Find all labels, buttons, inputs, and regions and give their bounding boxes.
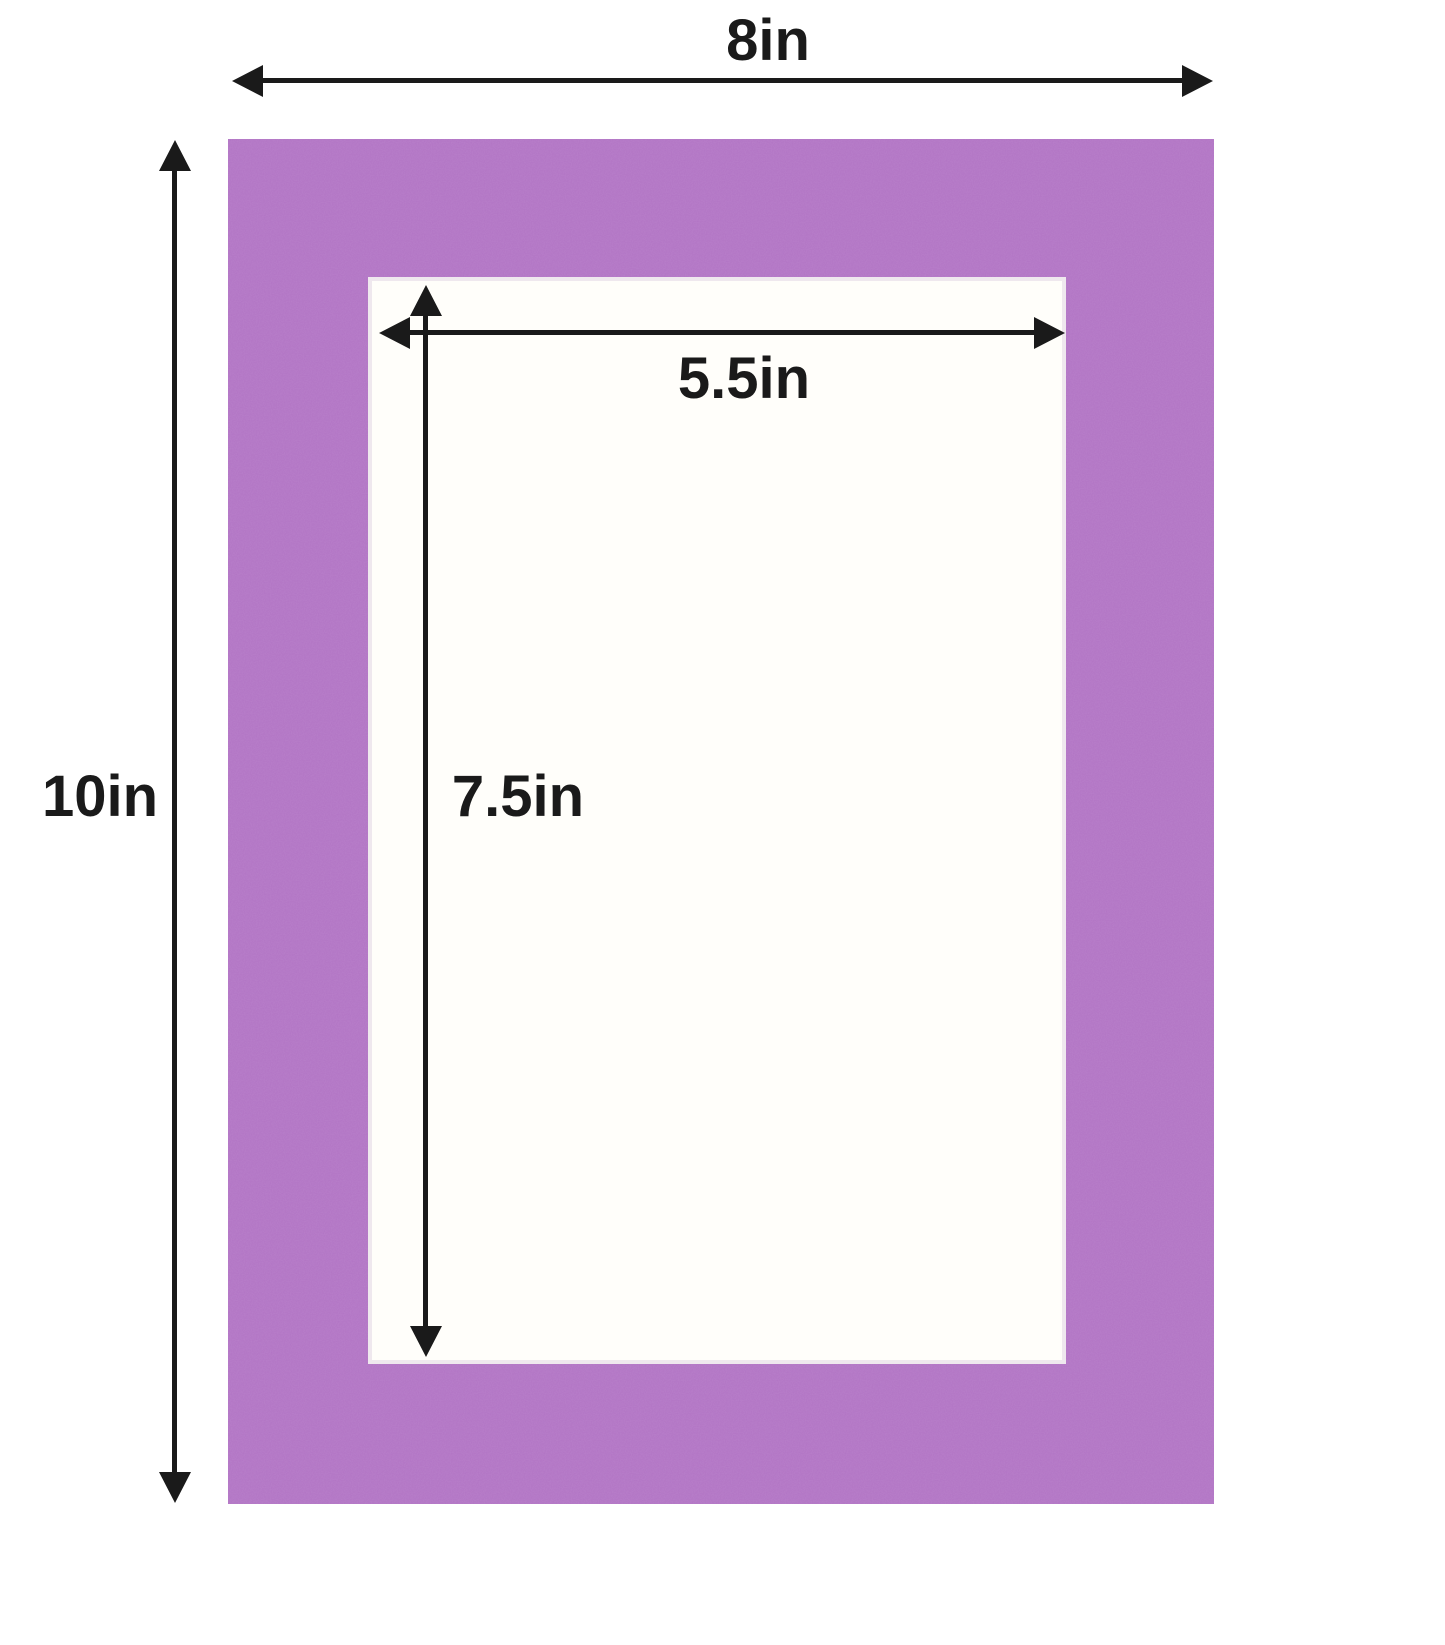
outer-height-label: 10in bbox=[0, 764, 200, 831]
outer-width-dimension-arrow bbox=[263, 78, 1182, 83]
opening-width-dimension-arrow bbox=[410, 330, 1034, 335]
opening-height-label: 7.5in bbox=[418, 764, 618, 831]
outer-width-label: 8in bbox=[668, 8, 868, 75]
opening-width-label: 5.5in bbox=[644, 346, 844, 413]
mat-dimension-diagram: 8in 10in 5.5in 7.5in bbox=[0, 0, 1445, 1645]
